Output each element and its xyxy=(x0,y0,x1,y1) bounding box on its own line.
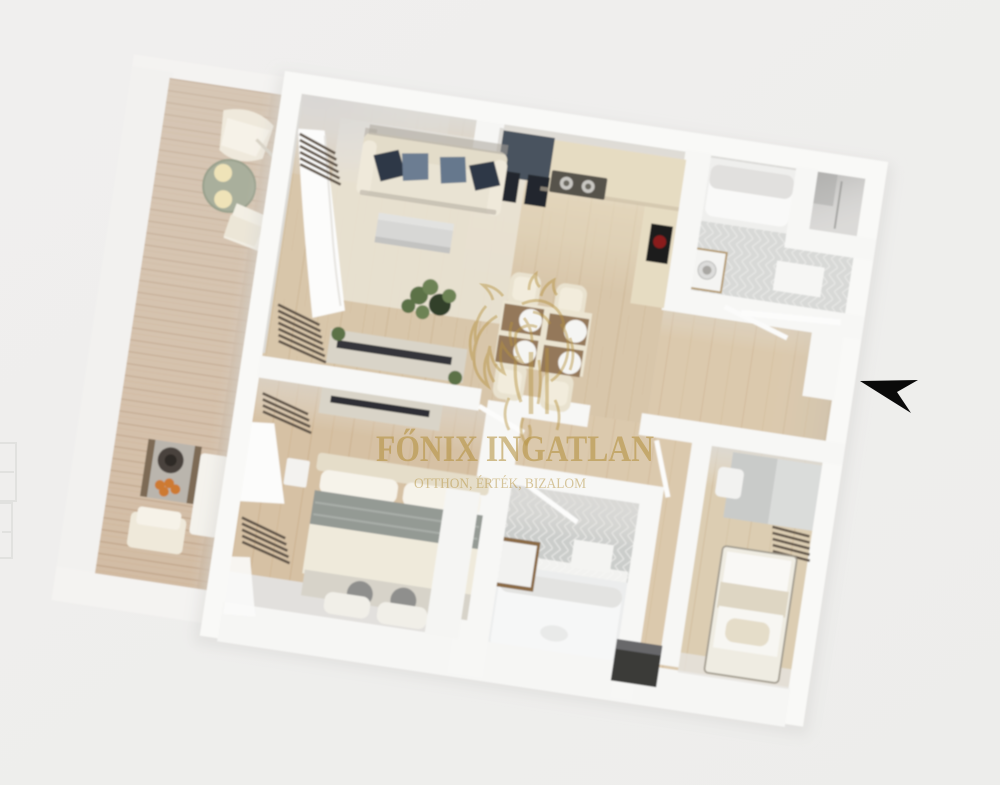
svg-text:FŐNIX INGATLAN: FŐNIX INGATLAN xyxy=(376,427,654,470)
svg-text:OTTHON, ÉRTÉK, BIZALOM: OTTHON, ÉRTÉK, BIZALOM xyxy=(414,475,586,492)
